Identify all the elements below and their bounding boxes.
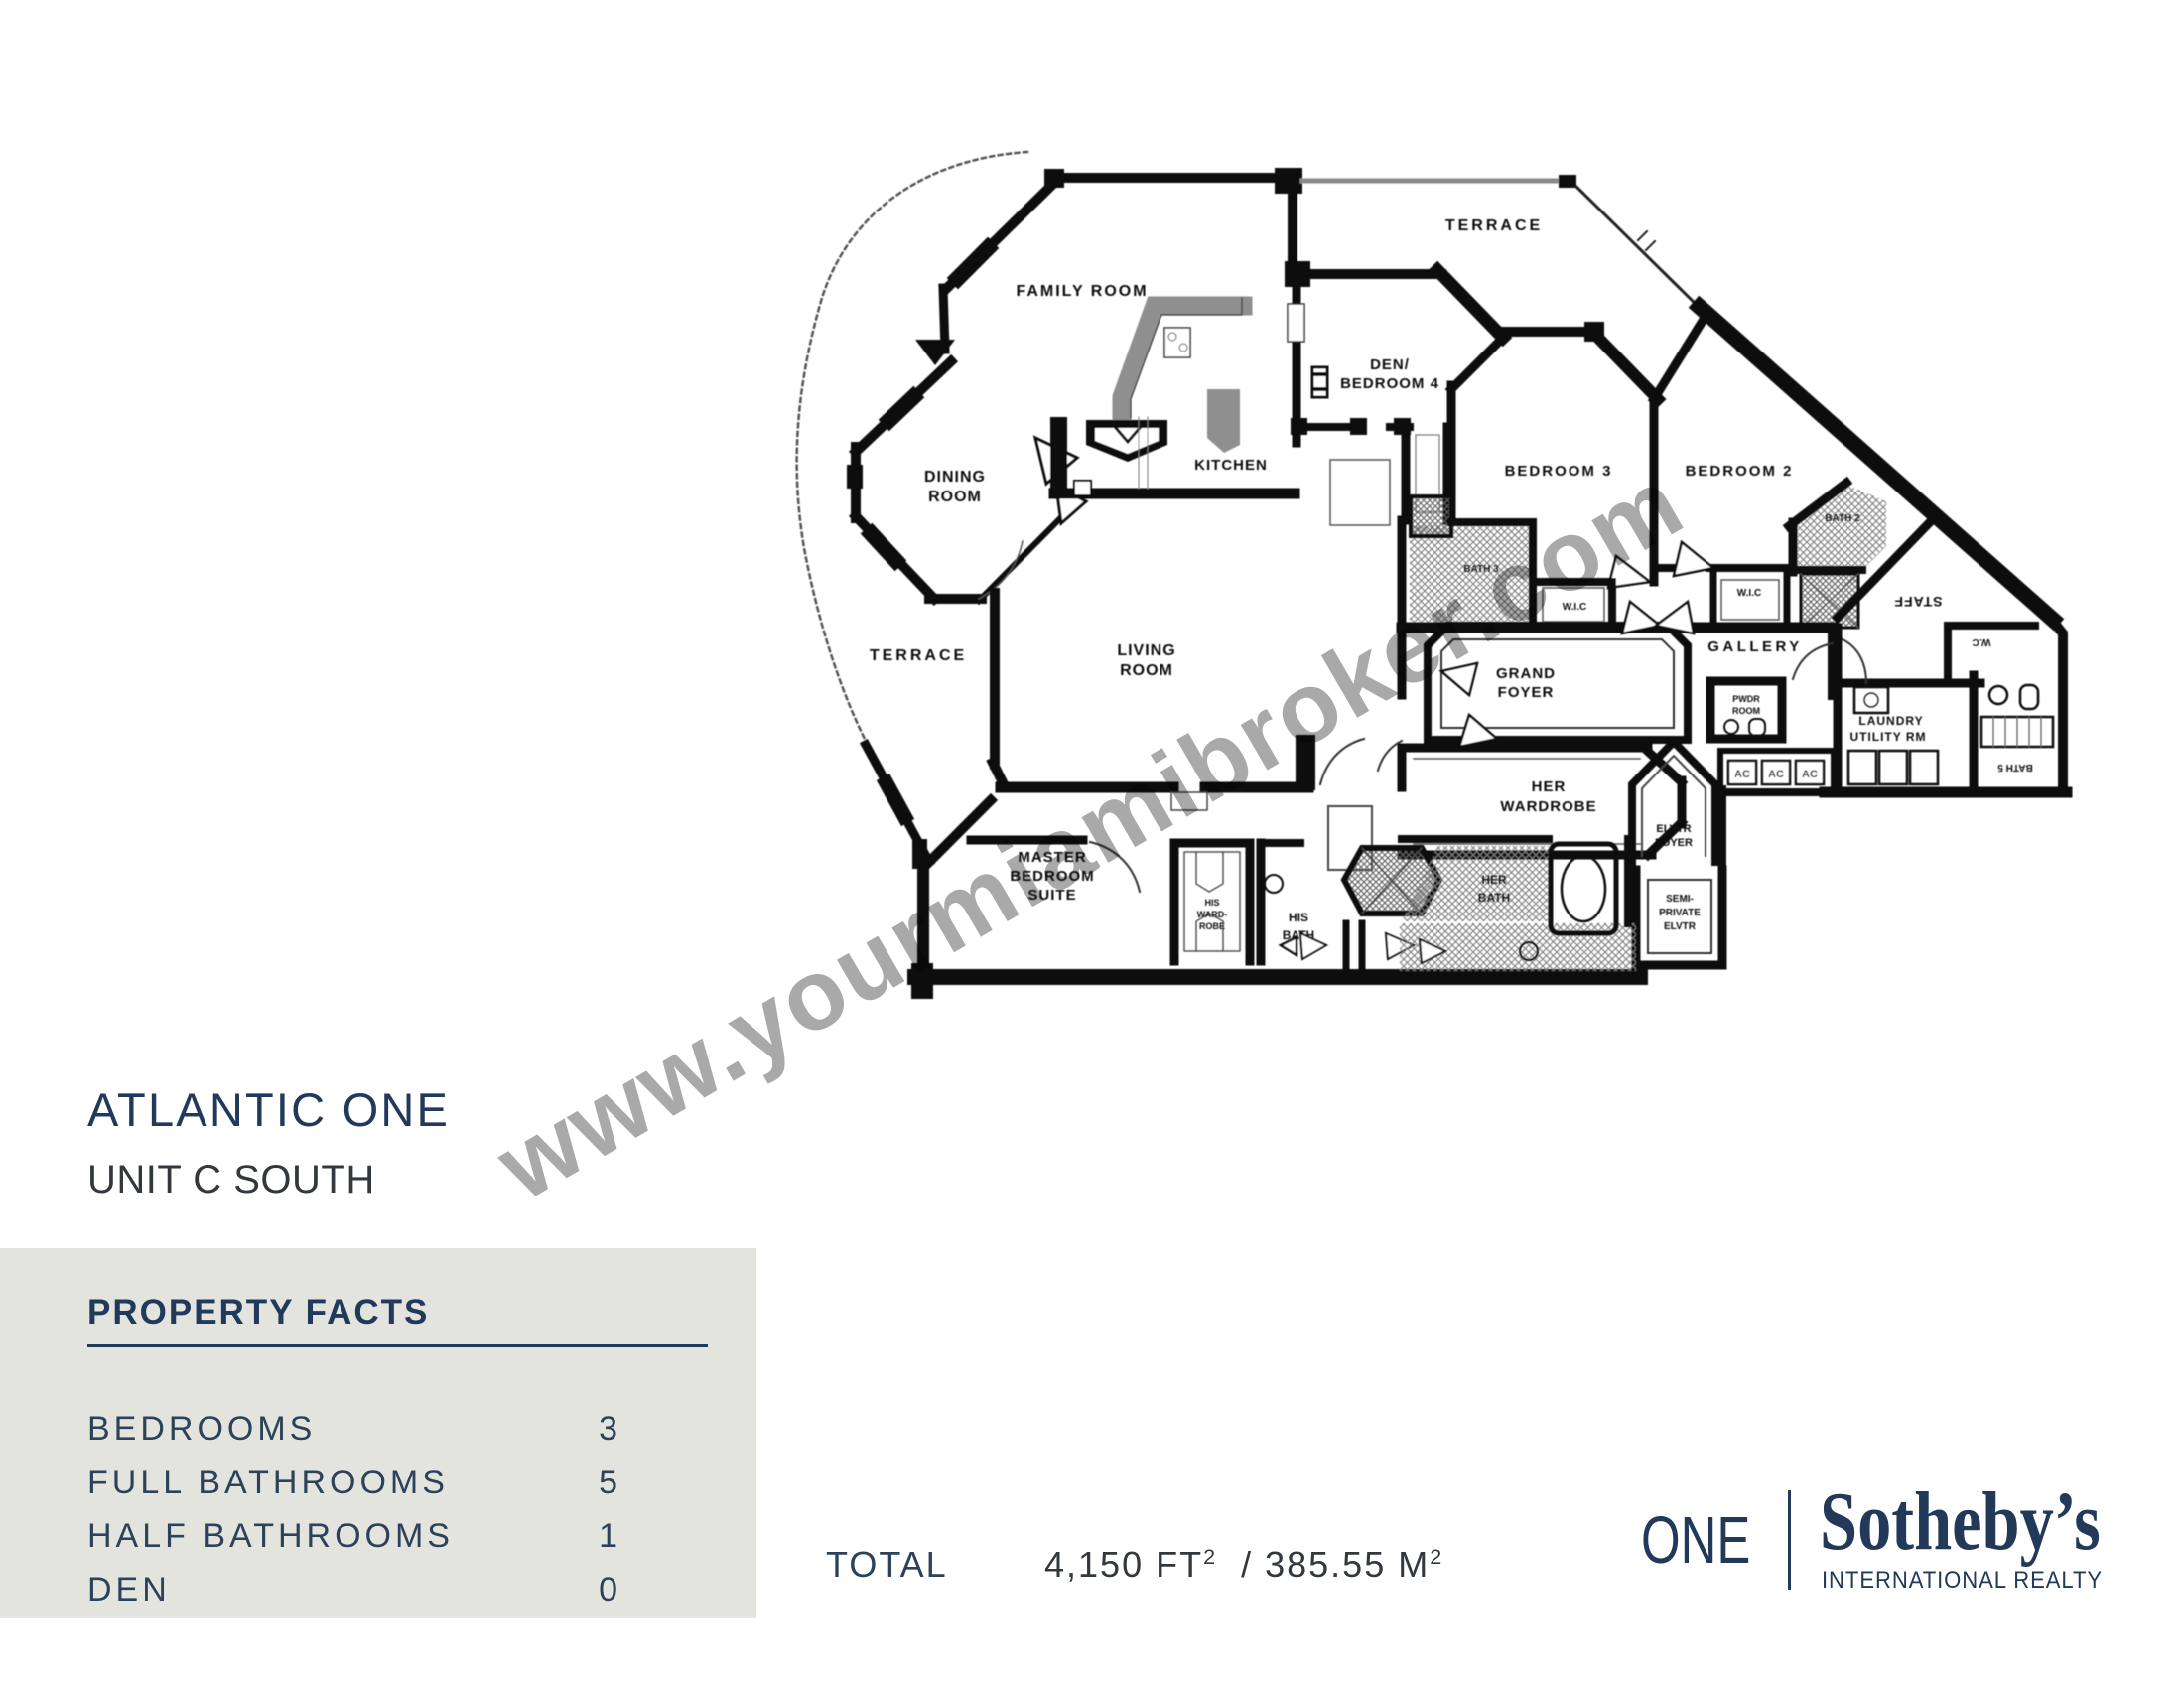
svg-text:ELVTR: ELVTR <box>1656 823 1691 835</box>
svg-text:AC: AC <box>1734 769 1750 780</box>
svg-text:ROOM: ROOM <box>928 489 982 505</box>
svg-text:HER: HER <box>1532 778 1567 795</box>
svg-text:ROOM: ROOM <box>1120 662 1173 679</box>
svg-text:HIS: HIS <box>1289 911 1308 924</box>
svg-text:HER: HER <box>1481 873 1507 887</box>
svg-text:PRIVATE: PRIVATE <box>1659 908 1701 918</box>
svg-text:FOYER: FOYER <box>1655 837 1693 849</box>
svg-text:ELVTR: ELVTR <box>1664 921 1697 932</box>
svg-text:W.I.C: W.I.C <box>1737 588 1761 599</box>
svg-text:W.C: W.C <box>1973 636 1991 647</box>
svg-text:BATH: BATH <box>1478 891 1510 905</box>
svg-text:KITCHEN: KITCHEN <box>1194 457 1268 474</box>
svg-text:AC: AC <box>1802 769 1818 780</box>
svg-text:FAMILY ROOM: FAMILY ROOM <box>1016 283 1148 300</box>
svg-text:WARDROBE: WARDROBE <box>1500 798 1596 815</box>
svg-text:FOYER: FOYER <box>1498 684 1555 701</box>
svg-text:UTILITY RM: UTILITY RM <box>1849 730 1926 744</box>
svg-text:GALLERY: GALLERY <box>1707 638 1803 655</box>
svg-text:GRAND: GRAND <box>1496 665 1556 682</box>
svg-text:BATH 2: BATH 2 <box>1825 513 1860 524</box>
svg-text:BEDROOM 4: BEDROOM 4 <box>1340 375 1439 392</box>
svg-text:ROOM: ROOM <box>1732 706 1760 716</box>
svg-text:STAFF: STAFF <box>1893 594 1942 610</box>
svg-text:BATH 5: BATH 5 <box>1997 762 2033 773</box>
svg-text:TERRACE: TERRACE <box>1445 217 1543 234</box>
svg-text:WARD-: WARD- <box>1197 910 1228 919</box>
svg-text:BEDROOM 2: BEDROOM 2 <box>1686 463 1794 480</box>
svg-text:ROBE: ROBE <box>1199 921 1225 931</box>
svg-text:DEN/: DEN/ <box>1370 356 1410 373</box>
svg-text:SEMI-: SEMI- <box>1666 894 1694 905</box>
svg-text:PWDR: PWDR <box>1732 694 1760 704</box>
svg-text:DINING: DINING <box>924 469 986 486</box>
svg-text:AC: AC <box>1768 769 1784 780</box>
svg-text:LAUNDRY: LAUNDRY <box>1858 714 1923 728</box>
svg-text:HIS: HIS <box>1204 898 1219 908</box>
svg-text:TERRACE: TERRACE <box>870 647 967 664</box>
svg-text:LIVING: LIVING <box>1117 642 1175 659</box>
